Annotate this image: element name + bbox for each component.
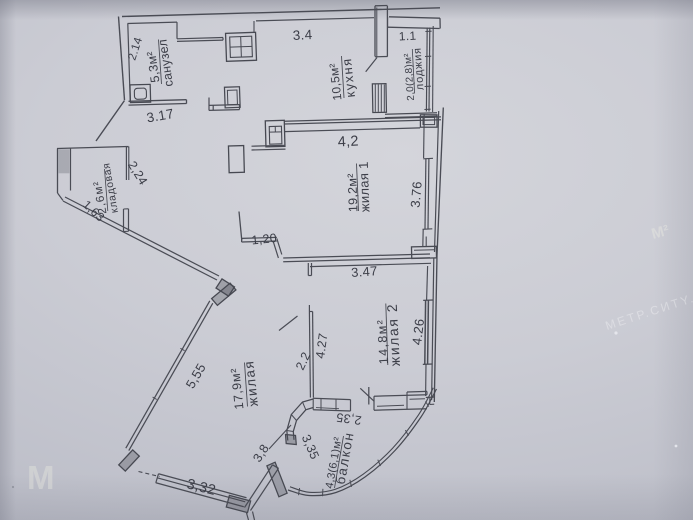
svg-text:1.1: 1.1	[398, 29, 416, 44]
svg-text:М: М	[27, 459, 55, 496]
svg-text:3,8: 3,8	[250, 442, 272, 465]
svg-text:МЕТР.СИТY.РФ: МЕТР.СИТY.РФ	[604, 284, 693, 333]
svg-text:3.4: 3.4	[292, 27, 313, 43]
svg-text:2.14: 2.14	[126, 36, 145, 62]
svg-text:3.76: 3.76	[408, 181, 425, 209]
svg-text:2,35: 2,35	[335, 410, 362, 427]
svg-text:4.27: 4.27	[313, 332, 330, 359]
svg-text:3.17: 3.17	[145, 106, 175, 126]
svg-text:3,32: 3,32	[185, 476, 217, 499]
svg-text:14,8м²: 14,8м²	[375, 318, 391, 364]
svg-text:3,35: 3,35	[299, 433, 322, 462]
svg-text:1,20: 1,20	[251, 231, 278, 248]
svg-text:М²: М²	[650, 222, 671, 243]
svg-text:4,2: 4,2	[337, 133, 359, 150]
svg-text:19,2м²: 19,2м²	[345, 173, 360, 212]
svg-text:5,55: 5,55	[183, 361, 209, 391]
